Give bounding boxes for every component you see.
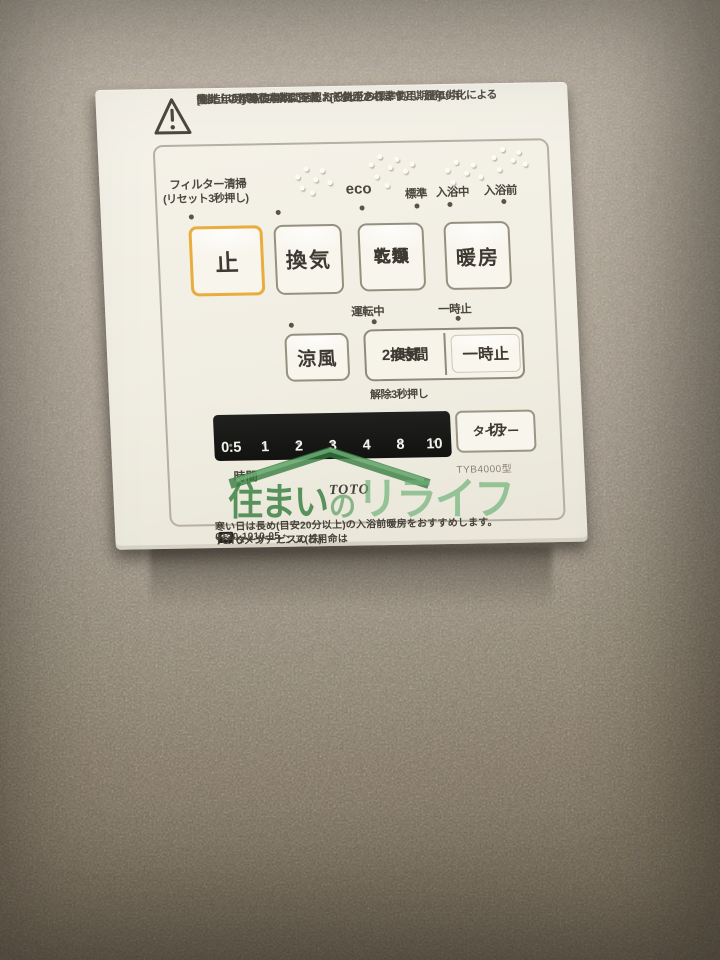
timer-step-value: 2 bbox=[295, 439, 304, 455]
timer-step: 2 bbox=[281, 413, 317, 460]
filter-reset-note: (リセット3秒押し) bbox=[163, 189, 249, 206]
photo-of-bathroom-control-panel: [製造年月] 製品本体に記載 [設計上の標準使用期間]10年 設計上の標準使用期… bbox=[0, 0, 720, 960]
temporary-stop-button[interactable]: 一時止 bbox=[450, 334, 521, 373]
cool-breeze-button-label: 涼風 bbox=[297, 343, 338, 371]
standard-indicator-light bbox=[414, 203, 419, 208]
panel-drop-shadow bbox=[150, 546, 552, 608]
timer-step-value: 4 bbox=[362, 437, 371, 453]
bathing-indicator-light bbox=[447, 202, 452, 207]
paused-label: 一時止 bbox=[438, 301, 472, 318]
timer-scale: 0.5 1 2 3 4 8 10 bbox=[213, 411, 452, 461]
timer-step-value: 8 bbox=[396, 437, 405, 453]
timer-off-label-2: タイマー bbox=[472, 424, 519, 438]
cool-breeze-button[interactable]: 涼風 bbox=[284, 333, 350, 382]
timer-step: 10 bbox=[416, 411, 452, 458]
stop-button[interactable]: 止 bbox=[188, 225, 265, 296]
model-number: TYB4000型 bbox=[456, 460, 512, 476]
timer-step: 8 bbox=[382, 412, 418, 459]
heating-button[interactable]: 暖房 bbox=[443, 221, 512, 290]
timer-step: 1 bbox=[247, 414, 283, 461]
standard-label: 標準 bbox=[405, 185, 428, 201]
filter-clean-indicator-light bbox=[189, 214, 194, 219]
vent-24h-group: 24時間 換気 一時止 bbox=[363, 327, 525, 382]
vent-24h-label-2: 換気 bbox=[390, 346, 421, 364]
service-company: TOTOメンテナンス(株) bbox=[215, 530, 322, 547]
timer-step-value: 1 bbox=[261, 439, 270, 455]
running-label: 運転中 bbox=[351, 303, 385, 320]
timer-step: 4 bbox=[348, 412, 384, 459]
release-note: 解除3秒押し bbox=[370, 385, 429, 402]
timer-step: 3 bbox=[314, 413, 350, 460]
timer-step: 0.5 bbox=[213, 415, 249, 462]
temporary-stop-label: 一時止 bbox=[462, 342, 510, 365]
eco-label: eco bbox=[345, 180, 372, 197]
paused-indicator-light bbox=[456, 316, 461, 321]
eco-indicator-light bbox=[359, 205, 364, 210]
cool-breeze-indicator-light bbox=[289, 323, 294, 328]
pre-bathing-indicator-light bbox=[501, 199, 506, 204]
heating-button-label: 暖房 bbox=[455, 241, 500, 271]
ventilation-indicator-light bbox=[276, 210, 281, 215]
timer-step-value: 10 bbox=[426, 436, 443, 452]
timer-step-value: 0.5 bbox=[221, 440, 242, 456]
bathing-label: 入浴中 bbox=[436, 184, 470, 201]
stop-button-label: 止 bbox=[215, 244, 240, 278]
timer-off-button[interactable]: 切 タイマー bbox=[455, 409, 537, 452]
clothes-drying-button[interactable]: 衣類 乾燥 bbox=[357, 222, 426, 291]
bath-ventilation-control-panel: [製造年月] 製品本体に記載 [設計上の標準使用期間]10年 設計上の標準使用期… bbox=[95, 82, 588, 550]
ventilation-button-label: 換気 bbox=[285, 244, 332, 275]
clothes-drying-label-2: 乾燥 bbox=[373, 247, 410, 268]
vent-24h-button[interactable]: 24時間 換気 bbox=[365, 330, 445, 379]
timer-step-value: 3 bbox=[328, 438, 337, 454]
running-indicator-light bbox=[372, 319, 377, 324]
ventilation-button[interactable]: 換気 bbox=[273, 224, 344, 295]
pre-bathing-label: 入浴前 bbox=[483, 182, 517, 199]
timer-unit-label: 時間 bbox=[233, 467, 258, 484]
